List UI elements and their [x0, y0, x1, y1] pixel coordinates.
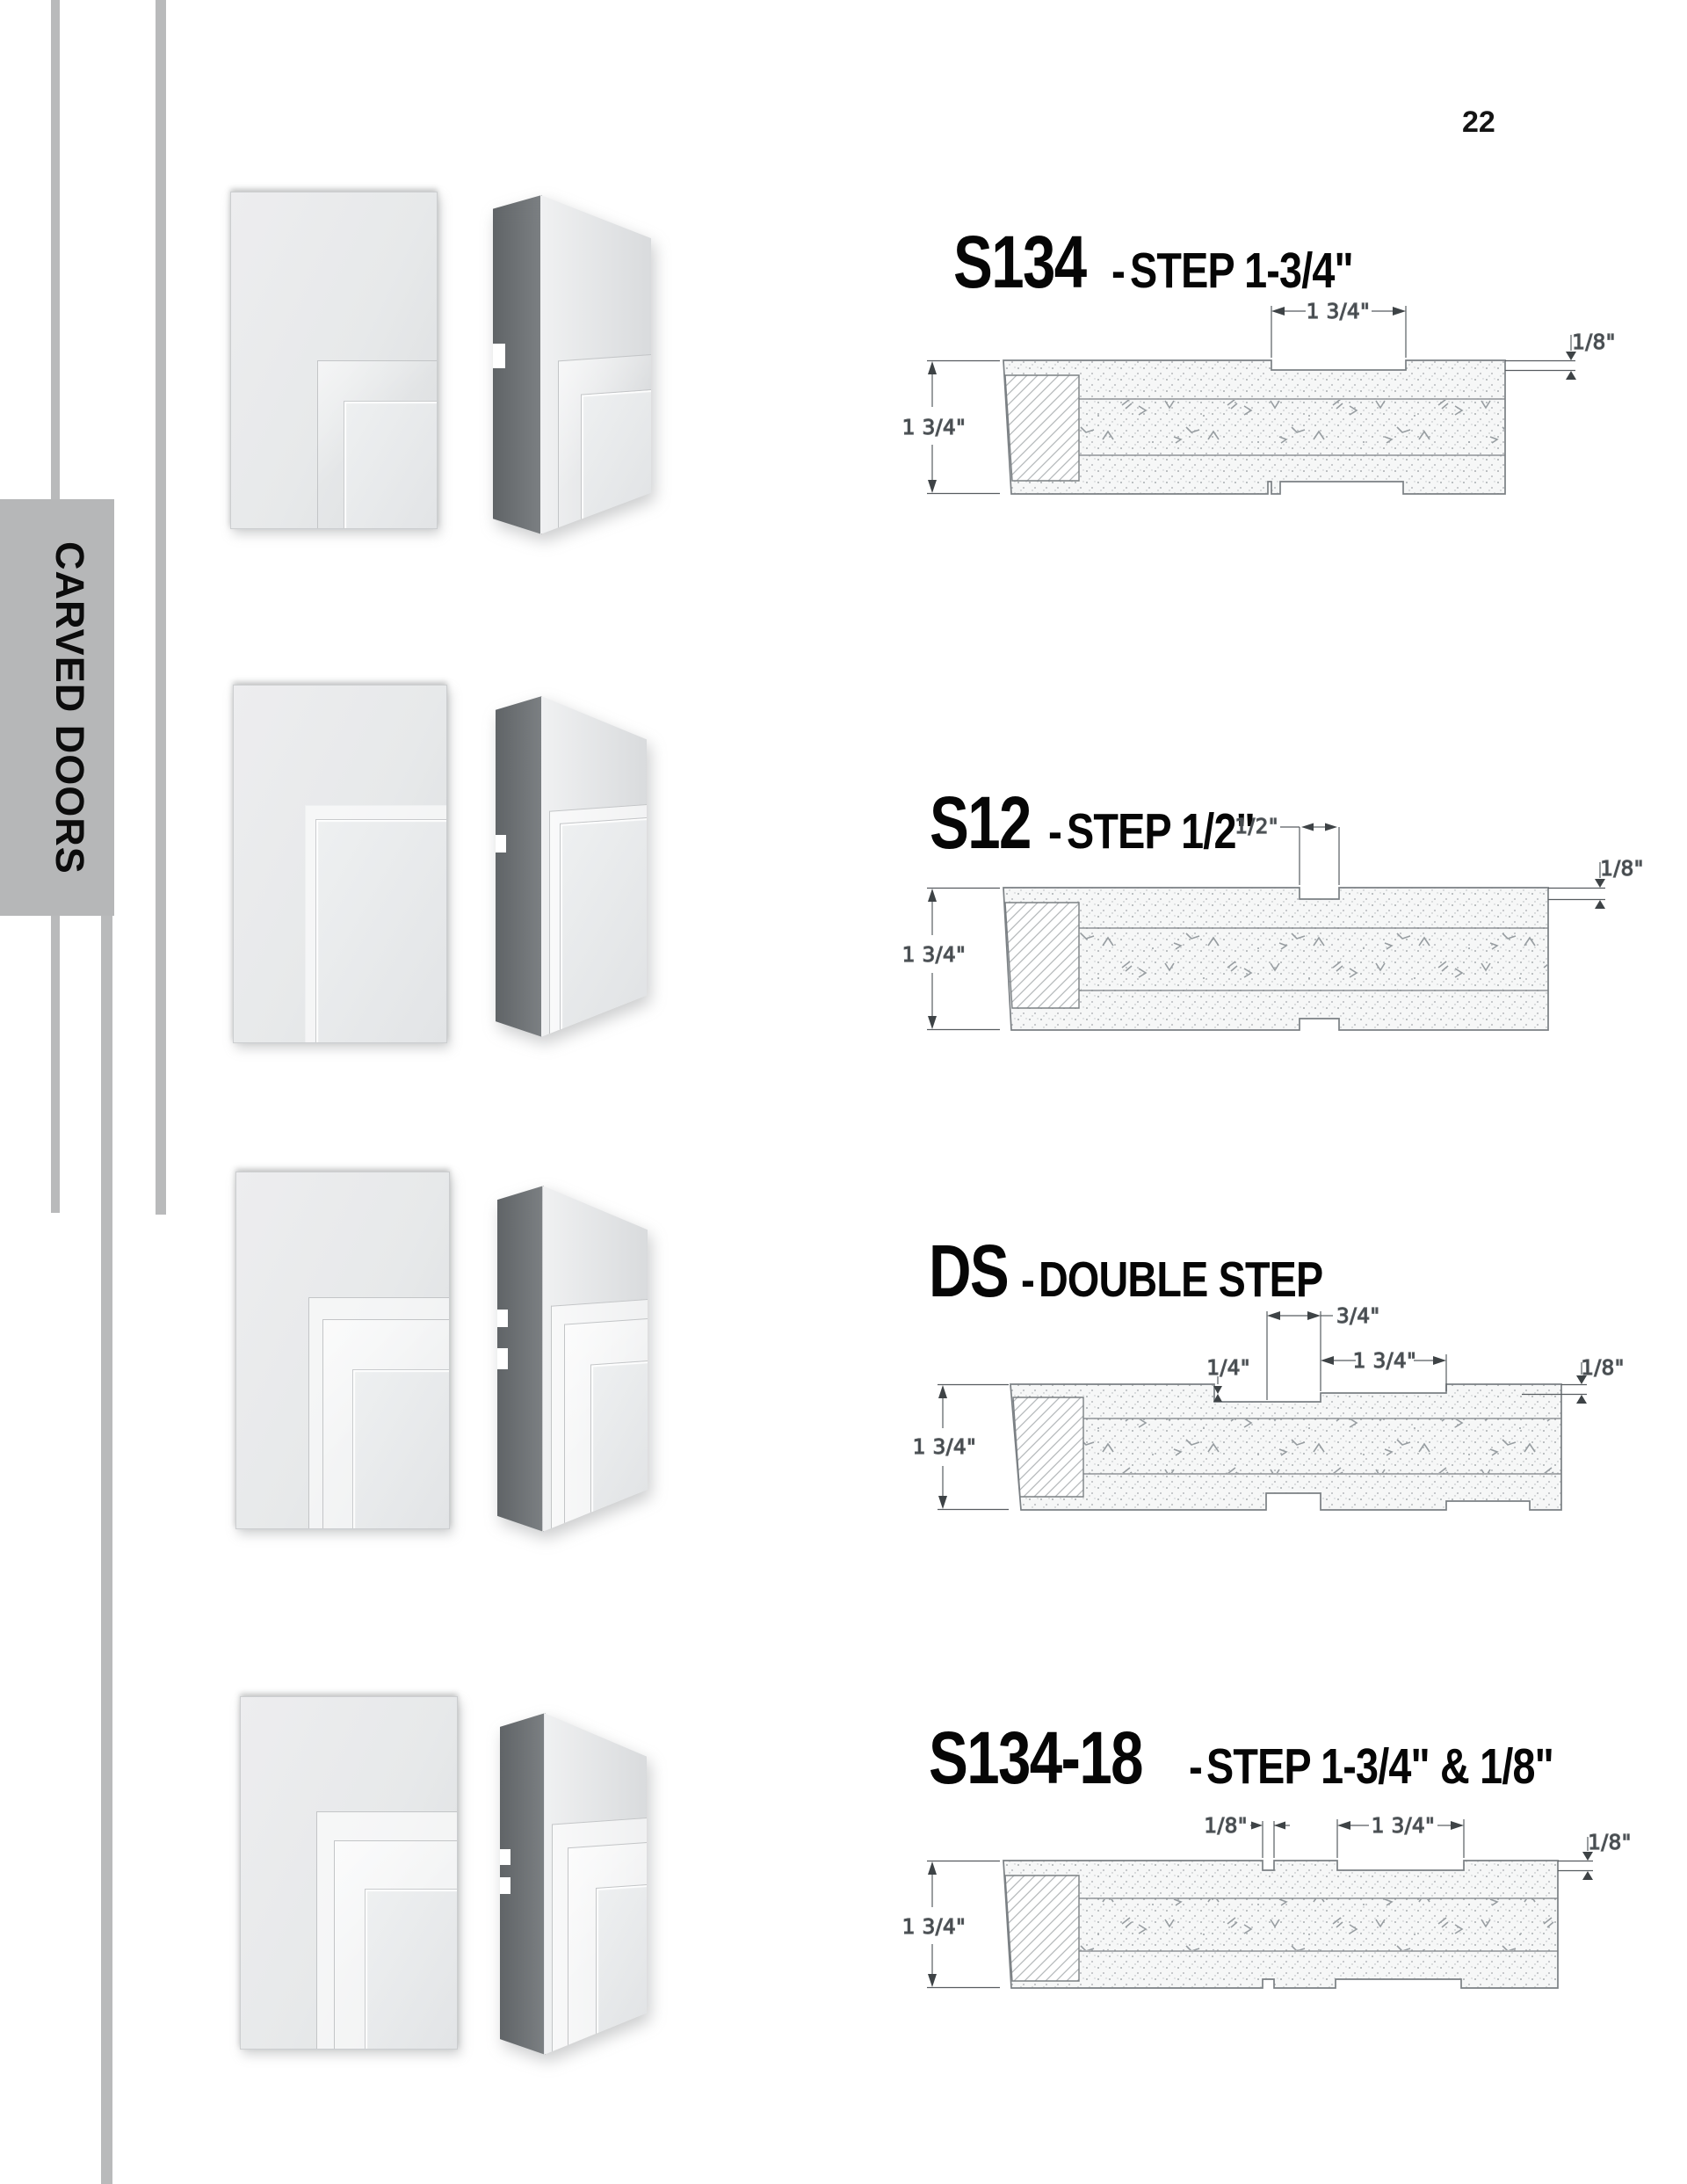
dim-label: 1/8"	[1204, 1815, 1248, 1838]
dim-label: 1 3/4"	[1353, 1350, 1417, 1373]
door-center-panel	[365, 1889, 457, 2049]
dim-label: 1/8"	[1588, 1832, 1632, 1854]
mdf-core-band	[1079, 400, 1505, 454]
dimension-wide-groove-width: 1 3/4"	[1337, 1815, 1464, 1858]
dimension-second-step-width: 1 3/4"	[1321, 1350, 1446, 1391]
dim-label: 1 3/4"	[1307, 301, 1371, 323]
dimension-left-thickness: 1 3/4"	[902, 361, 1000, 494]
door-front-view-s134	[230, 192, 438, 529]
dim-label: 1/4"	[1206, 1357, 1250, 1380]
door-front-view-s12	[233, 685, 447, 1043]
door-front-face	[542, 1179, 648, 1532]
dimension-right-step-depth: 1/8"	[1558, 1832, 1632, 1880]
door-center-panel	[352, 1369, 449, 1528]
section-outline	[1010, 1384, 1561, 1510]
edge-groove-notch	[493, 344, 505, 368]
dimension-top-step-width: 1/2"	[1234, 816, 1339, 885]
cross-section-s134-18: 1 3/4" 1/8" 1 3/4" 1/8"	[896, 1775, 1687, 2030]
edge-groove-notch	[496, 835, 506, 853]
cross-section-ds: 1 3/4" 1/4" 3/4" 1 3/4" 1/8"	[896, 1283, 1687, 1556]
dim-label: 1/8"	[1581, 1357, 1625, 1380]
dimension-left-thickness: 1 3/4"	[913, 1385, 1009, 1510]
door-front-face	[541, 689, 647, 1037]
catalog-page: { "page_number": "22", "sidebar": { "lab…	[0, 0, 1687, 2184]
dim-label: 1 3/4"	[902, 1916, 967, 1939]
door-front-face	[540, 188, 651, 534]
dim-label: 1 3/4"	[1372, 1815, 1436, 1838]
dim-label: 1 3/4"	[902, 417, 967, 439]
dim-label: 1/8"	[1572, 331, 1616, 354]
section-outline	[1003, 888, 1548, 1030]
door-3d-view-s12	[496, 689, 647, 1037]
door-front-face	[544, 1706, 647, 2055]
sidebar-outer-bar	[156, 0, 166, 1215]
page-number: 22	[1462, 105, 1495, 140]
dimension-right-step-depth: 1/8"	[1548, 858, 1644, 909]
mdf-core-band	[1079, 929, 1548, 990]
door-front-view-ds	[235, 1172, 450, 1529]
door-3d-view-ds	[497, 1179, 648, 1532]
cross-section-s12: 1 3/4" 1/2" 1/8"	[896, 809, 1687, 1046]
dimension-small-groove-width: 1/8"	[1204, 1815, 1290, 1858]
dim-label: 3/4"	[1336, 1305, 1380, 1328]
door-3d-view-s134-18	[500, 1706, 647, 2055]
edge-groove-notch	[500, 1877, 510, 1895]
dimension-top-step-width: 1 3/4"	[1271, 301, 1406, 358]
section-outline	[1003, 360, 1505, 494]
section-outline	[1003, 1861, 1558, 1988]
mdf-core-band	[1079, 1899, 1558, 1950]
door-center-panel	[590, 1360, 648, 1536]
mdf-core-band	[1083, 1419, 1561, 1473]
dim-label: 1 3/4"	[913, 1436, 977, 1459]
dimension-left-thickness: 1 3/4"	[902, 1861, 1000, 1988]
sidebar-section-tab: CARVED DOORS	[0, 499, 114, 916]
dimension-left-thickness: 1 3/4"	[902, 889, 1000, 1030]
sidebar-section-label: CARVED DOORS	[47, 541, 92, 874]
door-3d-view-s134	[493, 188, 651, 534]
edge-groove-notch	[497, 1348, 508, 1369]
door-edge-face	[496, 689, 542, 1037]
door-center-panel	[315, 819, 446, 1042]
edge-groove-notch	[500, 1849, 510, 1865]
door-center-panel	[560, 817, 647, 1043]
dim-label: 1/2"	[1234, 816, 1278, 838]
cross-section-s134: 1 3/4" 1 3/4" 1/8"	[896, 290, 1687, 510]
edge-groove-notch	[497, 1310, 508, 1327]
dim-label: 1/8"	[1600, 858, 1644, 881]
door-front-view-s134-18	[240, 1696, 458, 2050]
door-center-panel	[581, 389, 651, 539]
door-center-panel	[596, 1884, 647, 2058]
sidebar-lower-bar	[101, 916, 112, 2184]
dimension-right-step-depth: 1/8"	[1505, 331, 1616, 380]
door-center-panel	[344, 401, 437, 528]
dim-label: 1 3/4"	[902, 944, 967, 967]
